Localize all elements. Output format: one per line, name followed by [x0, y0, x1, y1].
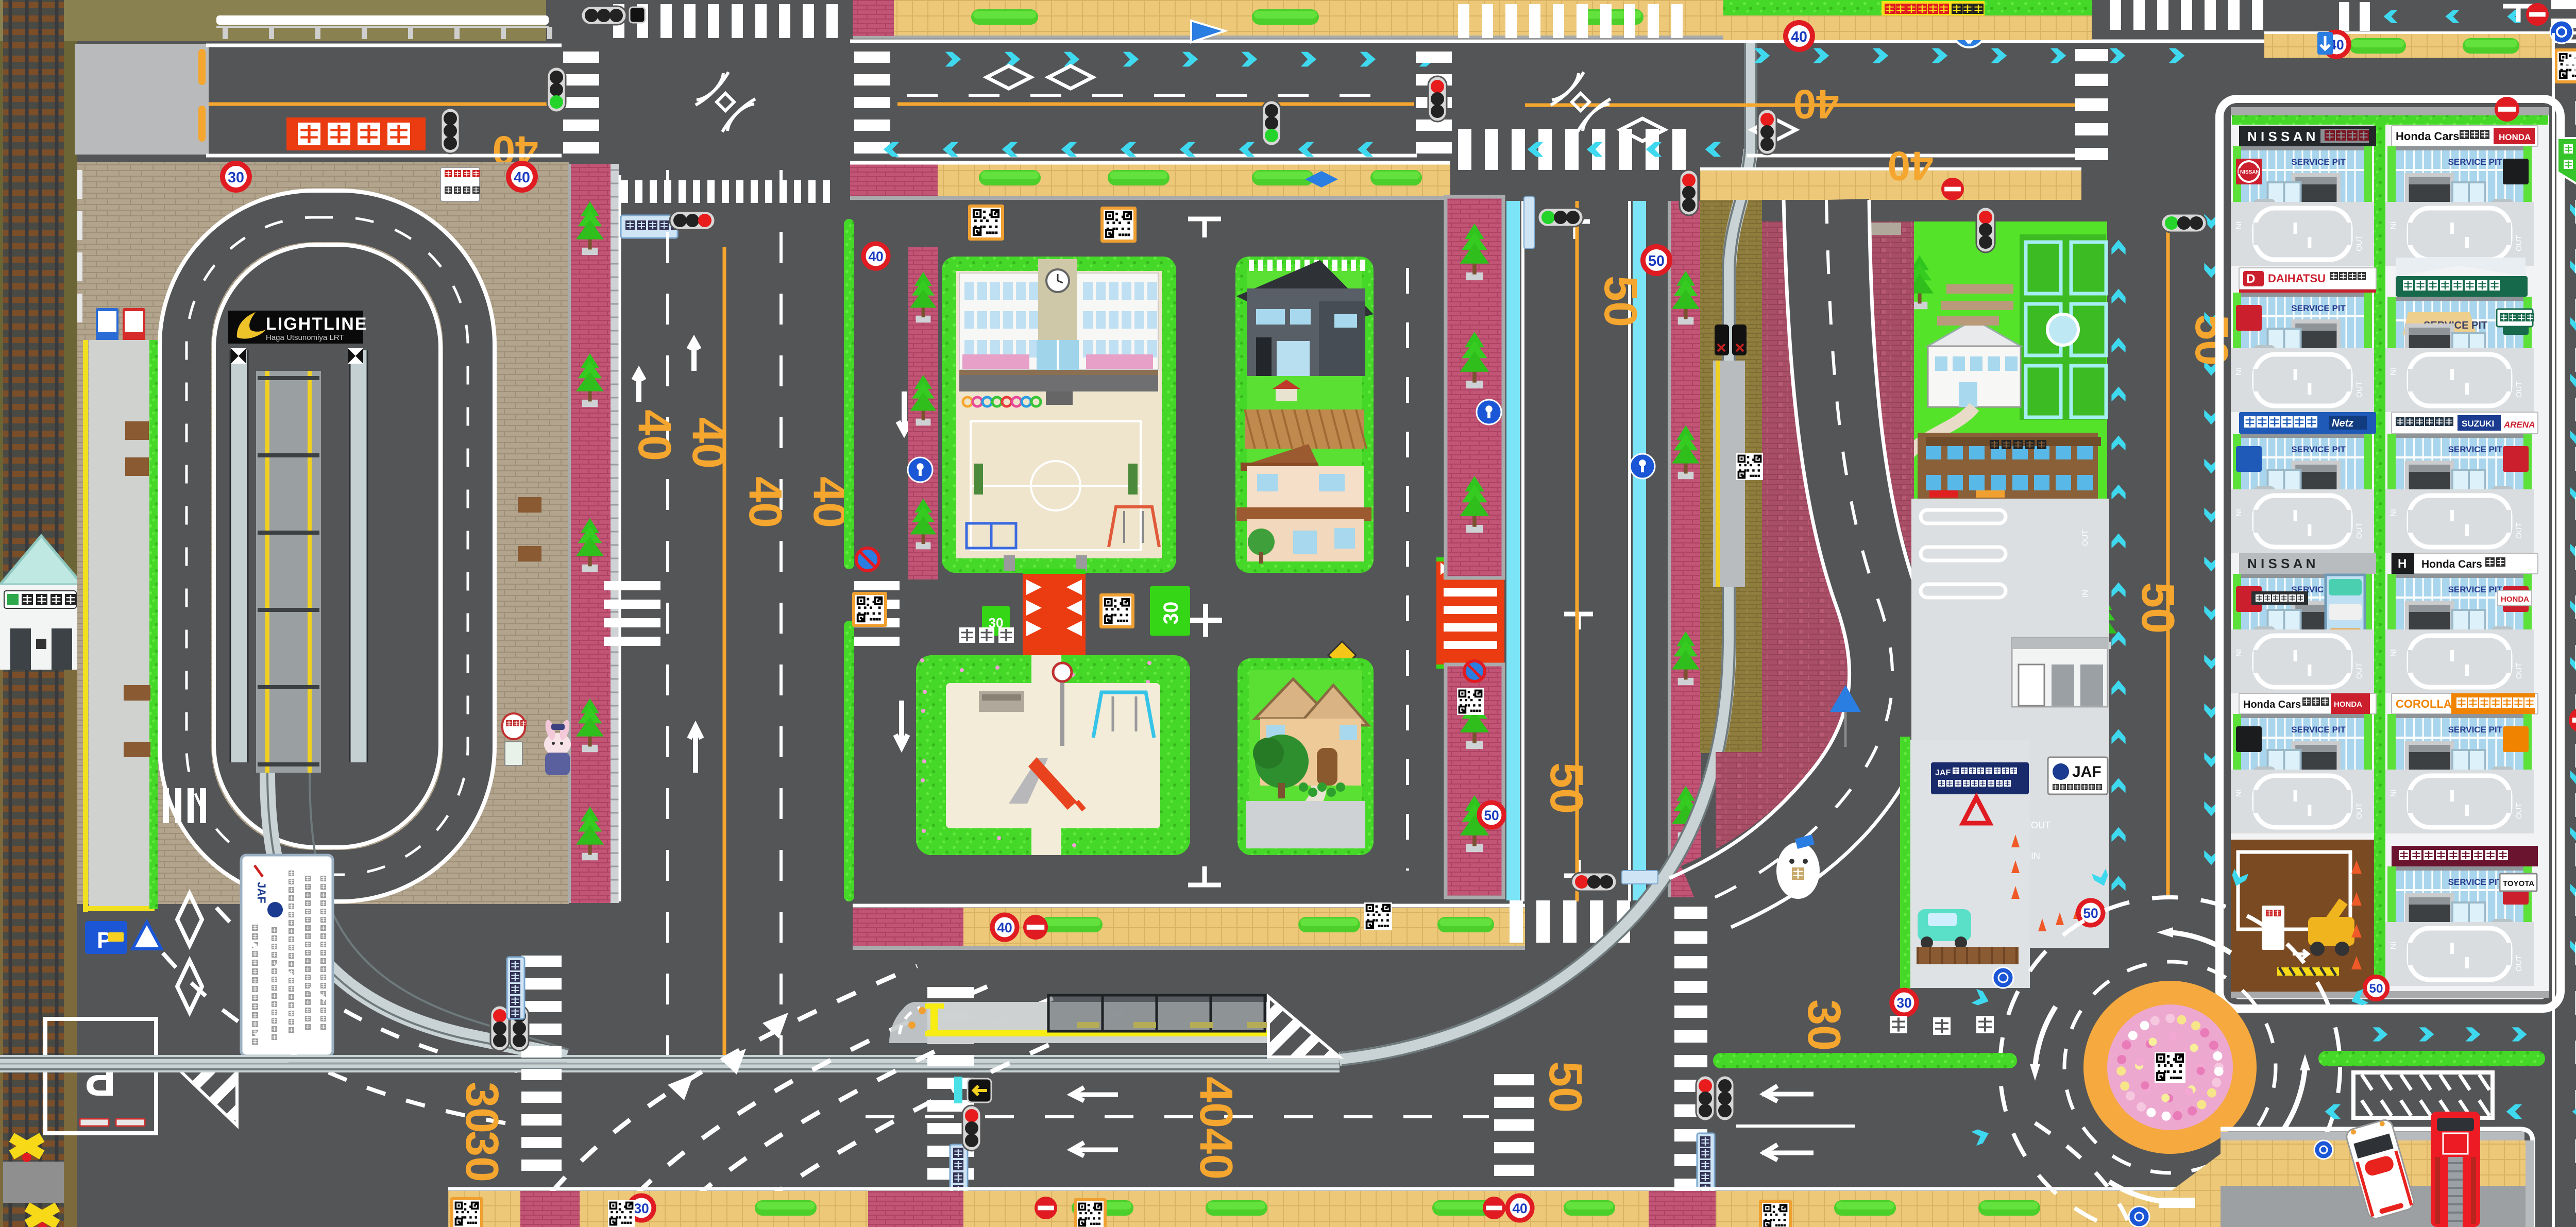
svg-text:40: 40: [1512, 1201, 1527, 1216]
svg-text:N I S S A N: N I S S A N: [2247, 556, 2315, 571]
svg-text:Honda Cars: Honda Cars: [2421, 558, 2482, 570]
svg-text:OUT: OUT: [2031, 820, 2050, 830]
svg-text:OUT: OUT: [2355, 662, 2364, 679]
svg-text:Haga Utsunomiya LRT: Haga Utsunomiya LRT: [266, 333, 344, 342]
svg-text:Honda Cars: Honda Cars: [2396, 130, 2459, 143]
svg-text:30: 30: [456, 1131, 507, 1182]
svg-text:40: 40: [1793, 81, 1839, 127]
svg-text:N I S S A N: N I S S A N: [2247, 129, 2315, 144]
svg-text:SERVICE PIT: SERVICE PIT: [2448, 725, 2503, 735]
svg-text:Netz: Netz: [2332, 418, 2353, 429]
svg-text:IN: IN: [2234, 649, 2243, 657]
svg-text:OUT: OUT: [2355, 235, 2364, 251]
svg-text:40: 40: [514, 169, 530, 186]
svg-text:40: 40: [1190, 1077, 1242, 1128]
svg-text:SERVICE PIT: SERVICE PIT: [2448, 445, 2503, 454]
svg-text:OUT: OUT: [2515, 235, 2523, 251]
svg-text:HONDA: HONDA: [2501, 595, 2529, 604]
svg-text:IN: IN: [2388, 368, 2397, 376]
svg-text:40: 40: [868, 249, 883, 264]
svg-text:IN: IN: [2031, 851, 2040, 861]
svg-text:HONDA: HONDA: [2499, 132, 2531, 142]
svg-text:SUZUKI: SUZUKI: [2462, 419, 2494, 429]
svg-text:DAIHATSU: DAIHATSU: [2268, 272, 2326, 285]
svg-text:IN: IN: [2388, 789, 2397, 797]
svg-text:SERVICE PIT: SERVICE PIT: [2291, 303, 2346, 313]
svg-text:IN: IN: [2234, 221, 2243, 229]
svg-text:ARENA: ARENA: [2503, 420, 2535, 430]
svg-text:40: 40: [1190, 1128, 1242, 1180]
svg-text:NISSAN: NISSAN: [2240, 169, 2260, 175]
svg-text:IN: IN: [2388, 509, 2397, 517]
svg-text:40: 40: [1791, 29, 1807, 45]
svg-text:SERVICE PIT: SERVICE PIT: [2448, 157, 2503, 167]
svg-text:TOYOTA: TOYOTA: [2503, 879, 2534, 888]
svg-text:HONDA: HONDA: [2334, 700, 2362, 709]
svg-text:IN: IN: [2388, 221, 2397, 229]
svg-text:OUT: OUT: [2515, 662, 2523, 679]
svg-text:IN: IN: [2388, 942, 2397, 949]
svg-text:50: 50: [1595, 276, 1646, 327]
svg-text:OUT: OUT: [2355, 381, 2364, 398]
svg-text:30: 30: [228, 169, 244, 186]
svg-text:SERVICE PIT: SERVICE PIT: [2291, 157, 2346, 167]
svg-text:50: 50: [1539, 1061, 1591, 1113]
svg-text:SERVICE PIT: SERVICE PIT: [2291, 725, 2346, 735]
svg-text:IN: IN: [2234, 789, 2243, 797]
svg-text:LIGHTLINE: LIGHTLINE: [266, 314, 367, 334]
svg-text:40: 40: [997, 920, 1012, 935]
svg-text:H: H: [2398, 557, 2406, 571]
svg-text:OUT: OUT: [2355, 522, 2364, 539]
svg-text:40: 40: [683, 417, 734, 469]
svg-text:40: 40: [629, 410, 680, 461]
svg-text:IN: IN: [2388, 649, 2397, 657]
svg-text:50: 50: [1540, 762, 1592, 814]
svg-text:OUT: OUT: [2515, 955, 2523, 972]
svg-text:50: 50: [2185, 314, 2237, 366]
svg-text:50: 50: [1484, 808, 1499, 823]
svg-text:50: 50: [2083, 906, 2098, 921]
svg-text:50: 50: [1648, 253, 1665, 269]
svg-text:OUT: OUT: [2515, 522, 2523, 539]
svg-text:30: 30: [1896, 995, 1911, 1011]
svg-text:50: 50: [2369, 982, 2383, 996]
svg-text:OUT: OUT: [2515, 381, 2523, 398]
svg-text:SERVICE PIT: SERVICE PIT: [2448, 877, 2503, 887]
svg-text:40: 40: [739, 476, 791, 528]
svg-text:JAF: JAF: [255, 882, 268, 904]
svg-text:SERVICE PIT: SERVICE PIT: [2291, 445, 2346, 454]
svg-text:50: 50: [2132, 582, 2183, 634]
svg-text:30: 30: [456, 1082, 507, 1133]
svg-text:Honda Cars: Honda Cars: [2243, 699, 2301, 710]
svg-text:IN: IN: [2234, 368, 2243, 376]
svg-text:IN: IN: [2234, 509, 2243, 517]
svg-text:COROLLA: COROLLA: [2396, 697, 2452, 710]
svg-text:OUT: OUT: [2515, 803, 2523, 819]
svg-text:JAF: JAF: [1935, 769, 1951, 777]
svg-text:30: 30: [634, 1201, 649, 1216]
svg-text:SERVICE PIT: SERVICE PIT: [2448, 585, 2503, 594]
svg-text:OUT: OUT: [2081, 530, 2090, 546]
svg-text:30: 30: [1160, 602, 1182, 625]
svg-text:JAF: JAF: [2072, 763, 2102, 780]
svg-text:OUT: OUT: [2355, 803, 2364, 819]
svg-text:30: 30: [1798, 999, 1850, 1051]
svg-text:IN: IN: [2081, 590, 2090, 598]
svg-text:40: 40: [1888, 143, 1934, 189]
svg-text:D: D: [2246, 272, 2255, 286]
